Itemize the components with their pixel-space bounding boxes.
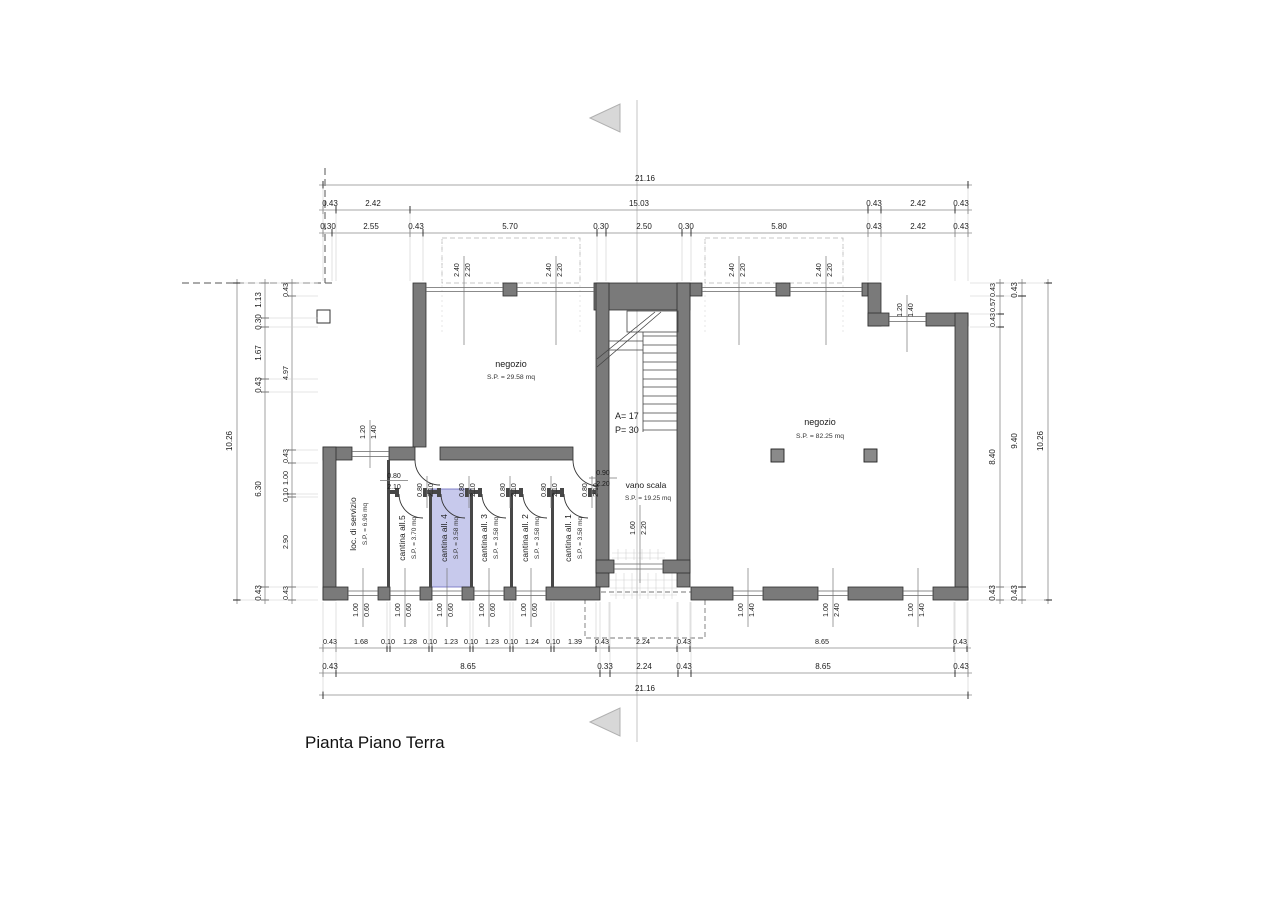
- column-icon: [771, 449, 784, 462]
- plan-title: Pianta Piano Terra: [305, 733, 445, 752]
- entry-steps-grid: [610, 549, 677, 599]
- dimension-ticks: [233, 181, 1052, 699]
- dim-label: 15.03: [629, 199, 650, 208]
- window-size-label: 1.00: [353, 603, 360, 617]
- room-name: negozio: [804, 417, 836, 427]
- window-size-label: 1.00: [479, 603, 486, 617]
- dim-label: 8.40: [988, 449, 997, 465]
- dim-label: 0.43: [323, 637, 337, 646]
- section-marker-top-icon: [590, 104, 620, 132]
- door-size-label: 2.20: [596, 481, 610, 488]
- dim-label: 0.43: [953, 222, 969, 231]
- window-size-label: 1.20: [360, 425, 367, 439]
- window-size-label: 2.20: [557, 263, 564, 277]
- boundary-dashed-lines: [182, 168, 332, 283]
- room-name: negozio: [495, 359, 527, 369]
- window-size-label: 1.00: [908, 603, 915, 617]
- dim-label: 1.24: [525, 637, 539, 646]
- walls: [323, 283, 968, 600]
- room-name: vano scala: [626, 480, 667, 490]
- floor-plan-drawing: 21.16 0.43 2.42 15.03 0.43 2.42 0.43 0.3…: [0, 0, 1280, 911]
- dim-label: 0.30: [254, 314, 263, 330]
- dim-label: 0.43: [1010, 585, 1019, 601]
- dim-label: 9.40: [1010, 433, 1019, 449]
- door-size-label: 2.10: [470, 483, 477, 497]
- dim-label: 0.43: [677, 637, 691, 646]
- door-size-label: 0.90: [596, 470, 610, 477]
- door-arc-vano-scala: [573, 460, 599, 486]
- dim-label: 0.57: [988, 298, 997, 312]
- dim-label: 10.26: [1036, 430, 1045, 451]
- door-size-label: 2.10: [511, 483, 518, 497]
- room-area: S.P. = 3.58 mq: [577, 516, 584, 559]
- room-area: S.P. = 19.25 mq: [625, 495, 671, 502]
- room-name: cantina all. 4: [439, 514, 449, 562]
- dim-label: 0.43: [254, 585, 263, 601]
- dim-label: 0.43: [988, 585, 997, 601]
- dim-label: 0.30: [678, 222, 694, 231]
- door-size-label: 0.80: [582, 483, 589, 497]
- window-size-label: 0.60: [490, 603, 497, 617]
- window-size-label: 2.40: [834, 603, 841, 617]
- room-area: S.P. = 3.58 mq: [453, 516, 460, 559]
- dim-label: 1.23: [485, 637, 499, 646]
- window-size-label: 1.00: [738, 603, 745, 617]
- window-size-label: 1.40: [371, 425, 378, 439]
- dim-label: 2.42: [910, 199, 926, 208]
- room-name: cantina all. 3: [479, 514, 489, 562]
- window-size-label: 2.40: [729, 263, 736, 277]
- dim-label: 0.30: [593, 222, 609, 231]
- section-marker-bottom-icon: [590, 708, 620, 736]
- dim-label: 8.65: [460, 662, 476, 671]
- window-size-label: 2.40: [546, 263, 553, 277]
- room-name: cantina all. 1: [563, 514, 573, 562]
- dim-label: 0.43: [953, 662, 969, 671]
- dim-label: 0.43: [595, 637, 609, 646]
- room-area: S.P. = 6.96 mq: [362, 502, 369, 545]
- window-size-label: 1.00: [437, 603, 444, 617]
- window-size-label: 1.40: [908, 303, 915, 317]
- floor-plan-canvas: 21.16 0.43 2.42 15.03 0.43 2.42 0.43 0.3…: [0, 0, 1280, 911]
- dim-label: 5.70: [502, 222, 518, 231]
- dim-label: 0.10: [546, 637, 560, 646]
- door-size-label: 0.80: [417, 483, 424, 497]
- dim-label: 2.90: [281, 535, 290, 549]
- door-size-label: 2.10: [428, 483, 435, 497]
- dim-label: 8.65: [815, 662, 831, 671]
- dim-label: 6.30: [254, 481, 263, 497]
- door-size-label: 2.10: [552, 483, 559, 497]
- window-size-label: 2.20: [465, 263, 472, 277]
- entry-dashed-pad: [585, 592, 705, 638]
- door-arc-servizio: [415, 460, 440, 485]
- dim-label: 0.43: [322, 199, 338, 208]
- dim-label: 2.24: [636, 662, 652, 671]
- room-name: cantina all. 2: [520, 514, 530, 562]
- dim-label: 4.97: [281, 366, 290, 380]
- dim-label: 1.13: [254, 292, 263, 308]
- dim-label: 2.42: [365, 199, 381, 208]
- dim-label: 2.55: [363, 222, 379, 231]
- dim-label: 21.16: [635, 684, 656, 693]
- canopy-dashed: [442, 238, 843, 283]
- dim-label: 1.39: [568, 637, 582, 646]
- door-size-label: 0.80: [541, 483, 548, 497]
- window-size-label: 2.40: [454, 263, 461, 277]
- dim-label: 0.43: [281, 449, 290, 463]
- dim-label: 21.16: [635, 174, 656, 183]
- dim-label: 0.43: [254, 377, 263, 393]
- dim-label: 0.43: [866, 222, 882, 231]
- window-size-label: 0.60: [406, 603, 413, 617]
- door-size-label: 1.60: [630, 521, 637, 535]
- dim-label: 1.67: [254, 345, 263, 361]
- room-area: S.P. = 3.58 mq: [493, 516, 500, 559]
- dim-label: 0.43: [953, 199, 969, 208]
- window-size-label: 1.00: [521, 603, 528, 617]
- window-size-label: 1.40: [749, 603, 756, 617]
- dim-label: 0.33: [597, 662, 613, 671]
- dim-label: 1.00: [281, 471, 290, 485]
- window-size-label: 2.20: [827, 263, 834, 277]
- dim-label: 0.43: [322, 662, 338, 671]
- dim-label: 0.43: [988, 283, 997, 297]
- dim-label: 0.43: [988, 313, 997, 327]
- stair-risers-label: A= 17: [615, 411, 639, 421]
- window-size-label: 2.20: [740, 263, 747, 277]
- highlighted-room-cantina-4: [431, 489, 471, 587]
- dim-label: 0.43: [1010, 282, 1019, 298]
- dim-label: 0.43: [281, 586, 290, 600]
- column-icon: [864, 449, 877, 462]
- columns: [771, 449, 877, 462]
- dim-label: 0.10: [281, 488, 290, 502]
- dim-label: 0.10: [381, 637, 395, 646]
- dim-label: 10.26: [225, 430, 234, 451]
- window-size-label: 1.20: [897, 303, 904, 317]
- door-size-label: 0.80: [387, 473, 401, 480]
- door-size-label: 2.10: [387, 484, 401, 491]
- dim-label: 2.24: [636, 637, 650, 646]
- window-size-label: 0.60: [532, 603, 539, 617]
- dim-label: 2.50: [636, 222, 652, 231]
- dim-label: 2.42: [910, 222, 926, 231]
- room-area: S.P. = 82.25 mq: [796, 433, 844, 440]
- dim-label: 0.10: [504, 637, 518, 646]
- dim-label: 8.65: [815, 637, 829, 646]
- dim-label: 0.30: [320, 222, 336, 231]
- window-size-label: 1.40: [919, 603, 926, 617]
- door-size-label: 0.80: [500, 483, 507, 497]
- stair-treads-label: P= 30: [615, 425, 639, 435]
- room-name: cantina all.5: [397, 515, 407, 561]
- dim-label: 1.68: [354, 637, 368, 646]
- dim-label: 0.10: [464, 637, 478, 646]
- room-name: loc. di servizio: [348, 497, 358, 551]
- window-size-label: 1.00: [395, 603, 402, 617]
- window-size-label: 2.40: [816, 263, 823, 277]
- dim-label: 0.10: [423, 637, 437, 646]
- dim-label: 0.43: [676, 662, 692, 671]
- dim-label: 0.43: [866, 199, 882, 208]
- door-size-label: 0.80: [459, 483, 466, 497]
- dim-label: 1.23: [444, 637, 458, 646]
- window-size-label: 0.60: [448, 603, 455, 617]
- room-area: S.P. = 3.70 mq: [411, 516, 418, 559]
- boundary-post: [317, 310, 330, 323]
- dimension-lines: [237, 185, 1048, 695]
- dim-label: 0.43: [953, 637, 967, 646]
- door-size-label: 2.20: [641, 521, 648, 535]
- dim-label: 5.80: [771, 222, 787, 231]
- dim-label: 1.28: [403, 637, 417, 646]
- room-area: S.P. = 3.58 mq: [534, 516, 541, 559]
- room-area: S.P. = 29.58 mq: [487, 374, 535, 381]
- dim-label: 0.43: [408, 222, 424, 231]
- window-size-label: 1.00: [823, 603, 830, 617]
- dim-label: 0.43: [281, 283, 290, 297]
- window-size-label: 0.60: [364, 603, 371, 617]
